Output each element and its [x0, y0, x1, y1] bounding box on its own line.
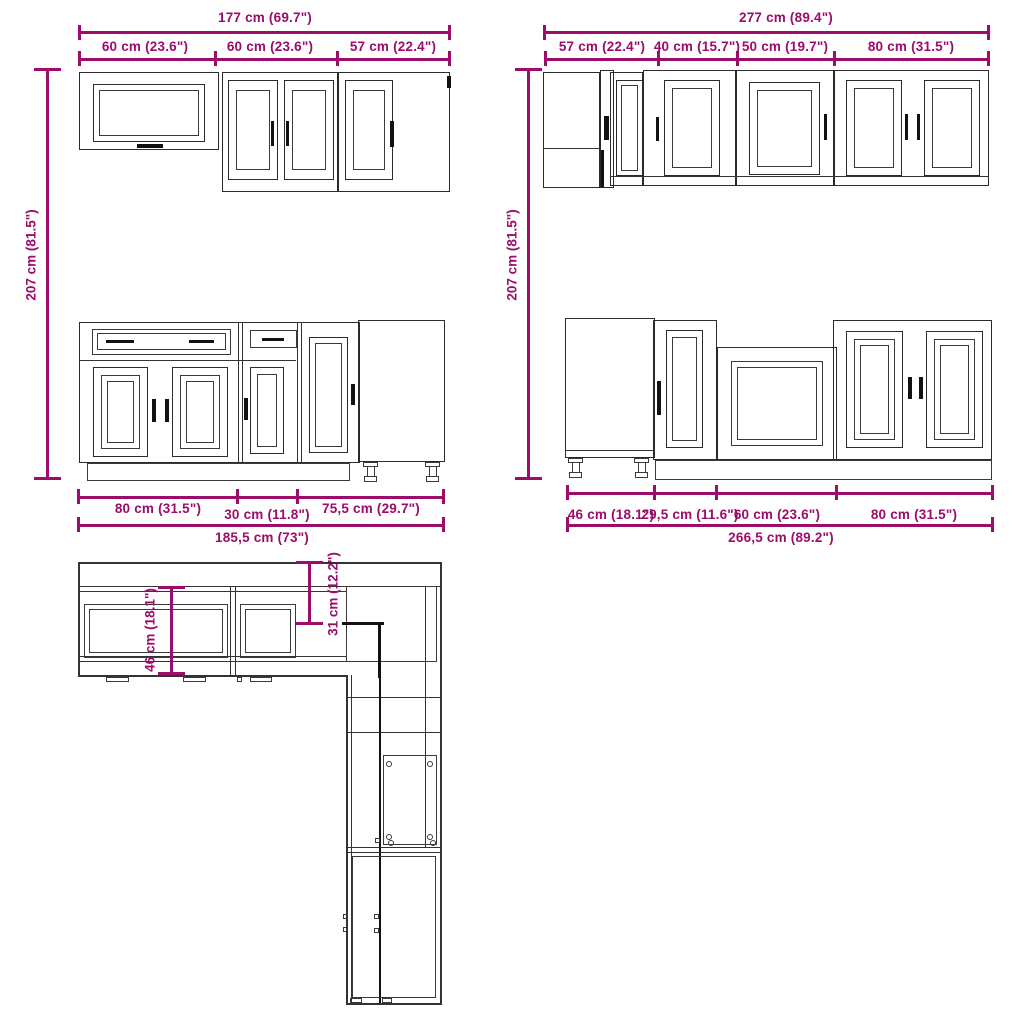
- wall-right-segment-width-label: 40 cm (15.7"): [654, 39, 740, 54]
- cabinet-door-panel: [315, 343, 342, 447]
- dim-cap: [34, 477, 61, 480]
- cabinet-hinge-mark: [447, 76, 451, 88]
- plan-counter-edge: [378, 622, 381, 678]
- screw-hole: [427, 761, 433, 767]
- plan-cabinet-footprint: [245, 609, 291, 653]
- cabinet-handle: [657, 381, 661, 415]
- fitting-mark: [374, 928, 379, 933]
- cabinet-leg: [364, 476, 377, 482]
- cabinet-door-panel: [236, 90, 270, 170]
- plan-foot-tab: [237, 677, 242, 682]
- plan-outline: [440, 562, 442, 1005]
- cabinet-door-panel: [940, 345, 969, 434]
- fitting-mark: [375, 838, 380, 843]
- dim-tick: [78, 25, 81, 40]
- dim-tick: [835, 485, 838, 500]
- cabinet-door-panel: [854, 88, 894, 168]
- wall-left-segment-width-label: 60 cm (23.6"): [227, 39, 313, 54]
- dim-line: [568, 492, 993, 495]
- wall-right-segment-width-label: 57 cm (22.4"): [559, 39, 645, 54]
- cabinet-door-panel: [621, 85, 638, 171]
- plan-base-depth-label: 46 cm (18.1"): [143, 588, 158, 672]
- cabinet-door-panel: [353, 90, 385, 170]
- dim-cap: [158, 672, 185, 675]
- dim-tick: [448, 25, 451, 40]
- base-left-total-width-label: 185,5 cm (73"): [215, 530, 309, 545]
- dim-line: [80, 58, 450, 61]
- cabinet-door-panel: [860, 345, 889, 434]
- dim-tick: [336, 51, 339, 66]
- dim-tick: [991, 517, 994, 532]
- cabinet-handle: [656, 117, 659, 141]
- base-right-segment-width-label: 80 cm (31.5"): [871, 507, 957, 522]
- divider-line: [242, 322, 243, 463]
- dim-tick: [77, 517, 80, 532]
- plan-outline: [78, 562, 442, 564]
- divider-line: [301, 322, 302, 463]
- fitting-mark: [374, 914, 379, 919]
- rail-line: [80, 360, 296, 361]
- cabinet-handle: [919, 377, 923, 399]
- base-right-segment-width-label: 60 cm (23.6"): [734, 507, 820, 522]
- dim-line: [79, 496, 444, 499]
- plan-divider-line: [346, 847, 441, 848]
- dim-line: [79, 524, 444, 527]
- dim-tick: [77, 489, 80, 504]
- cabinet-handle: [165, 399, 169, 422]
- screw-hole: [430, 840, 436, 846]
- dim-line: [80, 31, 450, 34]
- wall-right-total-width-label: 277 cm (89.4"): [739, 10, 833, 25]
- cabinet-door-panel: [186, 381, 214, 443]
- plan-wall-depth-label: 31 cm (12.2"): [326, 552, 341, 636]
- plan-divider-line: [346, 852, 441, 853]
- plan-foot-tab: [183, 677, 206, 682]
- wall-left-segment-width-label: 60 cm (23.6"): [102, 39, 188, 54]
- dim-tick: [442, 489, 445, 504]
- cabinet-handle: [271, 121, 274, 146]
- cabinet-door-panel: [257, 374, 277, 447]
- dim-tick: [987, 25, 990, 40]
- plinth: [655, 460, 992, 480]
- plan-front-edge-line: [78, 656, 346, 657]
- dim-line: [308, 562, 311, 625]
- plan-foot-tab: [106, 677, 129, 682]
- dim-tick: [78, 51, 81, 66]
- plinth: [87, 463, 350, 481]
- dim-cap: [34, 68, 61, 71]
- plan-counter-line: [78, 591, 346, 592]
- cabinet-handle: [824, 114, 827, 140]
- cabinet-handle: [351, 384, 355, 405]
- dim-cap: [515, 68, 542, 71]
- plan-foot-tab: [350, 998, 362, 1003]
- cabinet-door-panel: [292, 90, 326, 170]
- drawer-handle: [106, 340, 134, 343]
- base-left-segment-width-label: 75,5 cm (29.7"): [322, 501, 420, 516]
- cabinet-shelf-line: [543, 148, 600, 149]
- dim-cap: [158, 586, 185, 589]
- dim-tick: [214, 51, 217, 66]
- dim-tick: [566, 517, 569, 532]
- plan-outline: [78, 562, 80, 677]
- fitting-mark: [343, 914, 348, 919]
- cabinet-handle: [390, 121, 394, 147]
- dim-cap: [515, 477, 542, 480]
- dim-line: [545, 31, 990, 34]
- appliance-front-panel: [737, 367, 817, 440]
- dim-tick: [653, 485, 656, 500]
- dim-line: [46, 68, 49, 480]
- cabinet-door-panel: [672, 337, 697, 441]
- dim-tick: [448, 51, 451, 66]
- drawer-handle: [262, 338, 284, 341]
- plan-panel: [383, 755, 437, 845]
- plan-foot-tab: [250, 677, 272, 682]
- kitchen-cabinet-dimension-diagram: 177 cm (69.7") 60 cm (23.6") 60 cm (23.6…: [0, 0, 1024, 1024]
- plan-foot-tab: [382, 998, 392, 1003]
- screw-hole: [388, 840, 394, 846]
- plan-outline: [346, 1003, 442, 1005]
- cabinet-handle: [152, 399, 156, 422]
- cabinet-bottom-rail-line: [610, 176, 989, 177]
- plan-divider-line: [346, 697, 441, 698]
- dim-tick: [442, 517, 445, 532]
- cabinet-handle: [137, 144, 163, 148]
- plan-outline: [346, 675, 348, 1005]
- wall-right-height-label: 207 cm (81.5"): [505, 209, 520, 300]
- base-left-segment-width-label: 80 cm (31.5"): [115, 501, 201, 516]
- cabinet-leg: [569, 472, 582, 478]
- plan-panel: [352, 856, 436, 998]
- dim-cap: [296, 561, 323, 564]
- cabinet-door-panel: [757, 90, 812, 167]
- cabinet-handle: [908, 377, 912, 399]
- base-right-segment-width-label: 29,5 cm (11.6"): [641, 507, 738, 522]
- dim-line: [527, 68, 530, 480]
- plan-front-edge-line: [78, 661, 346, 662]
- dim-line: [170, 587, 173, 675]
- wall-left-height-label: 207 cm (81.5"): [24, 209, 39, 300]
- cabinet-door-panel: [932, 88, 972, 168]
- base-left-segment-width-label: 30 cm (11.8"): [224, 507, 310, 522]
- dim-tick: [543, 25, 546, 40]
- wall-right-segment-width-label: 80 cm (31.5"): [868, 39, 954, 54]
- fitting-mark: [343, 927, 348, 932]
- cabinet-door-panel: [99, 90, 199, 136]
- cabinet-handle: [286, 121, 289, 146]
- corner-cabinet-outline: [565, 318, 655, 458]
- cabinet-leg: [635, 472, 648, 478]
- divider-line: [297, 322, 298, 463]
- dim-cap: [296, 622, 323, 625]
- dim-tick: [544, 51, 547, 66]
- cabinet-door-panel: [672, 88, 712, 168]
- dim-tick: [296, 489, 299, 504]
- wall-right-segment-width-label: 50 cm (19.7"): [742, 39, 828, 54]
- divider-line: [238, 322, 239, 463]
- cabinet-handle: [905, 114, 908, 140]
- dim-tick: [236, 489, 239, 504]
- cabinet-handle: [244, 398, 248, 420]
- cabinet-leg: [426, 476, 439, 482]
- dim-tick: [715, 485, 718, 500]
- cabinet-shelf-line: [565, 450, 655, 451]
- cabinet-door-panel: [107, 381, 134, 443]
- drawer-handle: [189, 340, 214, 343]
- wall-left-segment-width-label: 57 cm (22.4"): [350, 39, 436, 54]
- wall-left-total-width-label: 177 cm (69.7"): [218, 10, 312, 25]
- base-right-total-width-label: 266,5 cm (89.2"): [728, 530, 834, 545]
- screw-hole: [386, 761, 392, 767]
- cabinet-handle: [917, 114, 920, 140]
- plan-divider-line: [346, 732, 441, 733]
- dim-tick: [833, 51, 836, 66]
- dim-tick: [987, 51, 990, 66]
- dim-line: [545, 58, 990, 61]
- dim-tick: [566, 485, 569, 500]
- corner-cabinet-outline: [358, 320, 445, 462]
- dim-line: [568, 524, 993, 527]
- corner-cabinet-outline: [543, 72, 600, 188]
- dim-tick: [991, 485, 994, 500]
